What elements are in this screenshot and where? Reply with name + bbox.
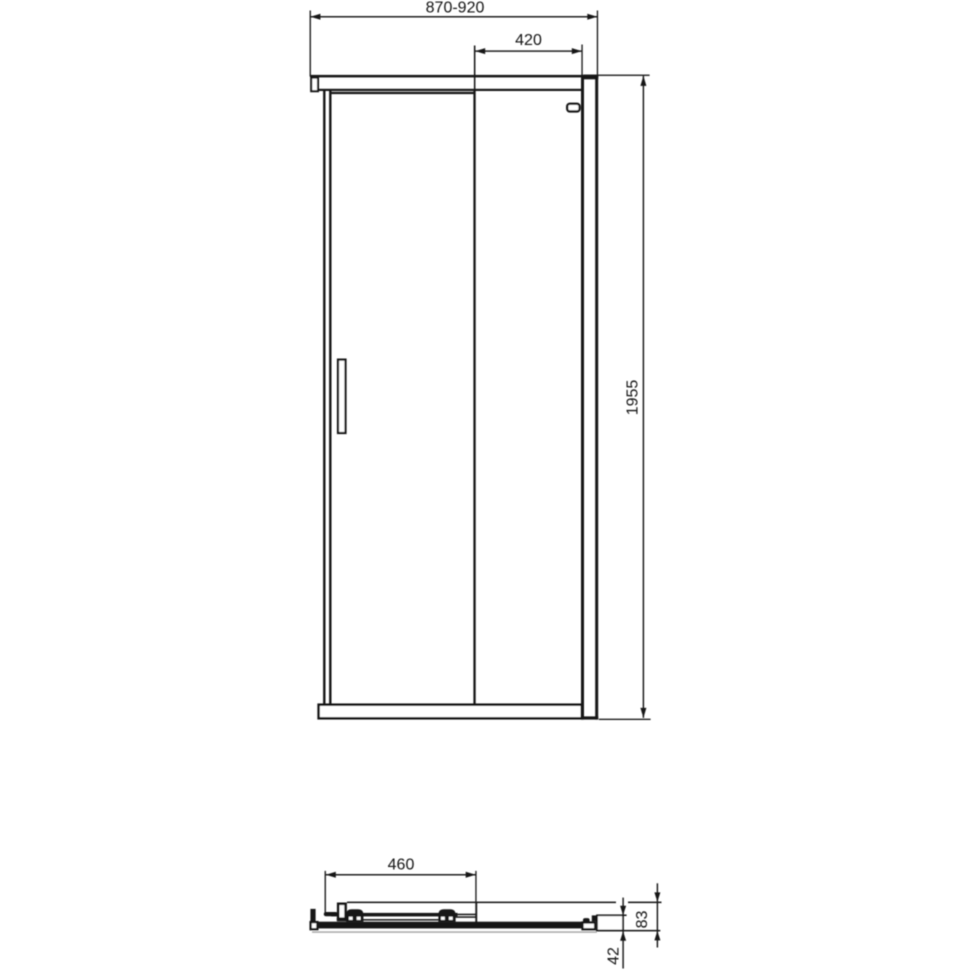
svg-text:420: 420 [515, 32, 542, 49]
svg-text:460: 460 [388, 856, 415, 873]
svg-text:870-920: 870-920 [426, 0, 485, 17]
svg-text:42: 42 [605, 947, 622, 965]
svg-text:1955: 1955 [624, 380, 641, 416]
svg-text:83: 83 [634, 911, 651, 929]
